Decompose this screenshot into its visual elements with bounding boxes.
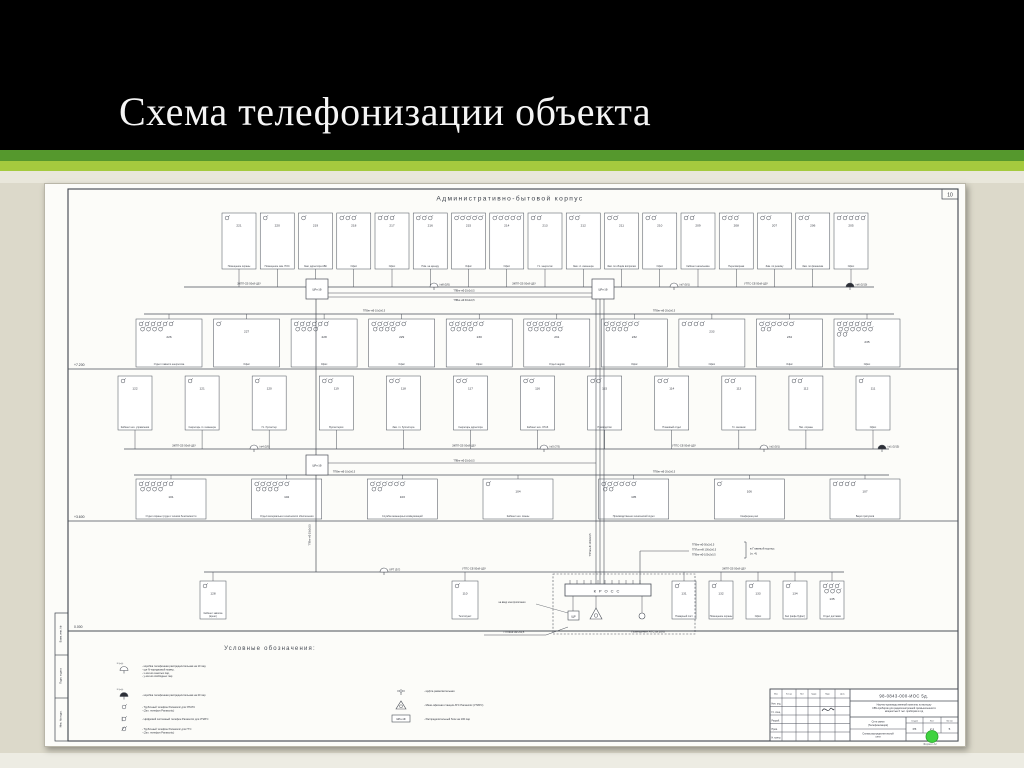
equipment-box: 231Отдел кадров	[524, 319, 590, 367]
equipment-box: 221Помещение охраны	[222, 213, 256, 269]
svg-text:ТПВнг-нФ 20х2х0,5: ТПВнг-нФ 20х2х0,5	[653, 471, 676, 474]
svg-text:208: 208	[734, 224, 739, 228]
svg-text:135: 135	[829, 597, 834, 601]
svg-text:134: 134	[792, 592, 797, 596]
equipment-box: 206Зам. по финансам	[796, 213, 830, 269]
svg-text:98-0843-000-ИОС 5д.: 98-0843-000-ИОС 5д.	[879, 694, 928, 699]
svg-text:Офис: Офис	[504, 265, 511, 268]
svg-text:215: 215	[466, 224, 471, 228]
svg-text:Зам. по режиму: Зам. по режиму	[766, 265, 785, 268]
svg-text:Офис: Офис	[631, 363, 638, 366]
svg-text:114: 114	[669, 387, 674, 391]
svg-text:ПТПЖнг-нФ 2х0,5: ПТПЖнг-нФ 2х0,5	[504, 631, 525, 634]
svg-text:Лист: Лист	[800, 694, 804, 696]
svg-text:(п. 4): (п. 4)	[750, 552, 757, 556]
svg-text:Помещение зам. НОС: Помещение зам. НОС	[265, 265, 290, 268]
svg-text:118: 118	[401, 387, 406, 391]
equipment-box: 113Гл. механик	[722, 376, 756, 430]
svg-text:132: 132	[718, 592, 723, 596]
svg-text:№1 (5/15): №1 (5/15)	[888, 445, 900, 449]
svg-text:- Трубочный телефон Panasonic: - Трубочный телефон Panasonic для ГТС	[142, 727, 192, 731]
equipment-box: 115Руководство	[588, 376, 622, 430]
svg-text:Офис: Офис	[476, 363, 483, 366]
equipment-box: 111Офис	[856, 376, 890, 430]
equipment-box: 117Секретарь директора	[453, 376, 487, 430]
svg-text:Пожарный пост: Пожарный пост	[675, 615, 693, 618]
equipment-box: 216Пом. на аренду	[413, 213, 447, 269]
equipment-box: 107Бюро пропусков	[830, 479, 900, 519]
svg-text:Гл. механик: Гл. механик	[732, 426, 746, 429]
svg-text:Секретарь гл. инженера: Секретарь гл. инженера	[188, 426, 216, 429]
svg-text:- Цифровой системный телефон P: - Цифровой системный телефон Panasonic д…	[142, 717, 209, 721]
svg-text:Зам. по финансам: Зам. по финансам	[802, 265, 823, 268]
svg-text:115: 115	[602, 387, 607, 391]
equipment-box: 134Зал (кафе-буфет)	[783, 581, 807, 619]
svg-text:Бюро пропусков: Бюро пропусков	[856, 515, 875, 518]
svg-text:Зам. директора АБК: Зам. директора АБК	[304, 265, 328, 268]
equipment-box: 208Переговорная	[719, 213, 753, 269]
svg-text:Условные обозначения:: Условные обозначения:	[224, 646, 316, 652]
equipment-box: 207Зам. по режиму	[758, 213, 792, 269]
svg-text:210: 210	[657, 224, 662, 228]
svg-text:219: 219	[313, 224, 318, 228]
svg-text:207: 207	[772, 224, 777, 228]
svg-text:133: 133	[755, 592, 760, 596]
accent-stripe-dark	[0, 150, 1024, 161]
svg-text:- где N-порядковый номер,: - где N-порядковый номер,	[142, 667, 175, 671]
equipment-box: 110Теплопункт	[452, 581, 478, 619]
svg-text:ШРн-1Ф: ШРн-1Ф	[312, 465, 321, 468]
svg-text:235: 235	[864, 340, 869, 344]
svg-text:УТПС-СЕ-50х8-ЦЗУ: УТПС-СЕ-50х8-ЦЗУ	[462, 566, 486, 570]
svg-text:232: 232	[632, 335, 637, 339]
svg-text:Гл. энергетик: Гл. энергетик	[538, 265, 554, 268]
svg-text:ТПВнг-нФ 20х2х0,5: ТПВнг-нФ 20х2х0,5	[453, 290, 475, 293]
svg-text:ЗКПП-СЕ-50х8-ЦЗУ: ЗКПП-СЕ-50х8-ЦЗУ	[237, 281, 261, 285]
svg-text:233: 233	[709, 330, 714, 334]
equipment-box: 131Пожарный пост	[672, 581, 696, 619]
equipment-box: 118Зам. гл. бухгалтера	[386, 376, 420, 430]
svg-text:Переговорная: Переговорная	[728, 265, 745, 268]
equipment-box: 226Отдел главного энергетика	[136, 319, 202, 367]
equipment-box: 214Офис	[490, 213, 524, 269]
svg-text:101: 101	[168, 495, 173, 499]
svg-text:№8 (5/5): №8 (5/5)	[440, 283, 450, 287]
equipment-box: 122Кабинет нач. управления	[118, 376, 152, 430]
svg-text:Зам. гл. инженера: Зам. гл. инженера	[573, 265, 594, 268]
svg-text:120: 120	[267, 387, 272, 391]
svg-text:Помещение охраны: Помещение охраны	[710, 615, 733, 618]
svg-text:Помещение охраны: Помещение охраны	[228, 265, 251, 268]
svg-text:- (2кл. телефон Panasonic): - (2кл. телефон Panasonic)	[142, 708, 174, 712]
svg-text:Подп.: Подп.	[825, 694, 830, 696]
svg-text:Офис: Офис	[755, 615, 762, 618]
svg-text:Офис: Офис	[389, 265, 396, 268]
svg-text:- Трубочный телефон Panasonic: - Трубочный телефон Panasonic для УПАТС	[142, 705, 195, 709]
svg-text:Лист: Лист	[930, 720, 934, 722]
svg-text:Кабинет нач. управления: Кабинет нач. управления	[121, 426, 150, 429]
svg-text:- (2кл. телефон Panasonic): - (2кл. телефон Panasonic)	[142, 730, 174, 734]
slide-title: Схема телефонизации объекта	[119, 88, 651, 135]
svg-text:229: 229	[399, 335, 404, 339]
svg-text:сети: сети	[875, 736, 881, 739]
svg-text:Офис: Офис	[465, 265, 472, 268]
svg-text:в Главный корпус: в Главный корпус	[750, 547, 775, 551]
svg-text:ЗКПП-СЕ-50х8-ЦЗУ: ЗКПП-СЕ-50х8-ЦЗУ	[512, 281, 536, 285]
svg-text:ТПВнг-нФ 50х2х0,5: ТПВнг-нФ 50х2х0,5	[692, 544, 715, 547]
svg-text:КРОСС: КРОСС	[594, 589, 623, 594]
svg-text:ТПВнг-нФ 20х2х0,5: ТПВнг-нФ 20х2х0,5	[653, 310, 676, 313]
equipment-box: 234Офис	[756, 319, 822, 367]
svg-text:234: 234	[787, 335, 792, 339]
svg-text:- коробка телефонная распредел: - коробка телефонная распределительная н…	[142, 693, 206, 697]
svg-text:УТПС-СЕ-50х8-ЦЗУ: УТПС-СЕ-50х8-ЦЗУ	[672, 443, 696, 447]
svg-text:131: 131	[681, 592, 686, 596]
svg-text:Взам. инв. №: Взам. инв. №	[59, 626, 63, 643]
equipment-box: 101Отдел охраны труда и техники безопасн…	[136, 479, 206, 519]
equipment-box: 232Офис	[601, 319, 667, 367]
svg-text:№7 (9/1): №7 (9/1)	[680, 283, 690, 287]
svg-text:№6 (5/10): №6 (5/10)	[856, 283, 868, 287]
svg-text:Офис: Офис	[398, 363, 405, 366]
svg-text:Кабинет нач. смены: Кабинет нач. смены	[507, 515, 530, 518]
svg-text:227: 227	[244, 330, 249, 334]
svg-text:Теплопункт: Теплопункт	[459, 615, 473, 618]
svg-text:Административно-бытовой корпус: Административно-бытовой корпус	[436, 195, 583, 203]
svg-text:212: 212	[581, 224, 586, 228]
floor2-top-row: 221Помещение охраны220Помещение зам. НОС…	[222, 213, 868, 269]
equipment-box: 220Помещение зам. НОС	[260, 213, 294, 269]
svg-text:Гл. бухгалтер: Гл. бухгалтер	[262, 426, 278, 429]
svg-text:КРТ (3/7): КРТ (3/7)	[390, 568, 401, 572]
svg-text:Служба инженерных коммуникаций: Служба инженерных коммуникаций	[382, 515, 423, 518]
svg-text:N (х/у): N (х/у)	[117, 663, 124, 665]
svg-text:+3.600: +3.600	[74, 515, 85, 519]
svg-text:ШРн-1Ф: ШРн-1Ф	[312, 289, 321, 292]
svg-text:106: 106	[747, 490, 752, 494]
accent-stripe-light	[0, 161, 1024, 171]
svg-text:Нач. отд.: Нач. отд.	[772, 703, 782, 705]
svg-text:Отдел материально-технического: Отдел материально-технического обеспечен…	[260, 515, 314, 518]
equipment-box: 209Кабинет начальника	[681, 213, 715, 269]
svg-text:- у-кол-во свободных пар: - у-кол-во свободных пар	[142, 674, 173, 678]
svg-text:Офис: Офис	[786, 363, 793, 366]
svg-text:ЗКПП-СЕ-50х8-ЦЗУ: ЗКПП-СЕ-50х8-ЦЗУ	[172, 443, 196, 447]
svg-text:Секретарь директора: Секретарь директора	[458, 426, 483, 429]
svg-text:ТПВнг-нФ 10х2х0,5: ТПВнг-нФ 10х2х0,5	[363, 310, 386, 313]
equipment-box: 217Офис	[375, 213, 409, 269]
svg-text:121: 121	[200, 387, 205, 391]
svg-text:105: 105	[631, 495, 636, 499]
equipment-box: 219Зам. директора АБК	[299, 213, 333, 269]
svg-text:- Распределительный блок на 10: - Распределительный блок на 100 пар	[424, 717, 471, 721]
equipment-box: 135Отдел доставки	[820, 581, 844, 619]
svg-text:Пом. на аренду: Пом. на аренду	[421, 265, 439, 268]
svg-text:ЩР: ЩР	[571, 614, 576, 618]
equipment-box: 235Офис	[834, 319, 900, 367]
svg-text:211: 211	[619, 224, 624, 228]
drawing-sheet: 10Административно-бытовой корпусВзам. ин…	[44, 183, 966, 747]
equipment-box: 132Помещение охраны	[709, 581, 733, 619]
svg-text:Н. контр.: Н. контр.	[772, 737, 782, 739]
svg-text:0.000: 0.000	[74, 625, 83, 629]
svg-text:107: 107	[862, 490, 867, 494]
equipment-box: 213Гл. энергетик	[528, 213, 562, 269]
svg-text:Конференц-зал: Конференц-зал	[741, 515, 759, 518]
svg-text:Отдел главного энергетика: Отдел главного энергетика	[154, 363, 185, 366]
svg-text:№2 (9/1): №2 (9/1)	[770, 445, 780, 449]
equipment-box: 105Производственно-технический отдел	[599, 479, 669, 519]
equipment-box: 120Гл. бухгалтер	[252, 376, 286, 430]
svg-text:- муфта разветвительная: - муфта разветвительная	[424, 689, 455, 693]
equipment-box: 205Офис	[834, 213, 868, 269]
svg-text:228: 228	[322, 335, 327, 339]
svg-text:116: 116	[535, 387, 540, 391]
title-block: 98-0843-000-ИОС 5д.Научно-производственн…	[770, 689, 958, 746]
background-band-top	[0, 171, 1024, 183]
svg-text:ШРн-1Ф: ШРн-1Ф	[396, 718, 405, 721]
svg-text:- коробка телефонная распредел: - коробка телефонная распределительная н…	[142, 664, 207, 668]
svg-text:ШРн-1Ф: ШРн-1Ф	[598, 289, 607, 292]
svg-text:103: 103	[400, 495, 405, 499]
svg-text:Офис: Офис	[848, 265, 855, 268]
svg-text:№3 (7/3): №3 (7/3)	[550, 445, 560, 449]
svg-text:216: 216	[428, 224, 433, 228]
svg-text:Кабинет начальника: Кабинет начальника	[686, 265, 710, 268]
equipment-box: 102Отдел материально-технического обеспе…	[252, 479, 322, 519]
svg-text:ТПВнг-нФ 30х2х0,5: ТПВнг-нФ 30х2х0,5	[309, 524, 312, 546]
svg-text:№4 (5/5): №4 (5/5)	[260, 445, 270, 449]
svg-text:206: 206	[810, 224, 815, 228]
svg-text:218: 218	[351, 224, 356, 228]
svg-text:220: 220	[275, 224, 280, 228]
svg-text:Отдел доставки: Отдел доставки	[823, 615, 842, 618]
equipment-box: 121Секретарь гл. инженера	[185, 376, 219, 430]
svg-text:221: 221	[236, 224, 241, 228]
telephony-diagram: 10Административно-бытовой корпусВзам. ин…	[44, 183, 966, 747]
equipment-box: 229Офис	[369, 319, 435, 367]
svg-text:Бухгалтерия: Бухгалтерия	[329, 426, 344, 429]
svg-text:ТППэп-нФ 100х2х0,5: ТППэп-нФ 100х2х0,5	[589, 533, 592, 557]
svg-text:Помещение АТС (в.106): Помещение АТС (в.106)	[631, 629, 665, 633]
svg-text:122: 122	[132, 387, 137, 391]
svg-text:Офис: Офис	[864, 363, 871, 366]
equipment-box: 210Офис	[643, 213, 677, 269]
svg-text:213: 213	[542, 224, 547, 228]
svg-text:мощностью 6 тыс. приборов в го: мощностью 6 тыс. приборов в год	[885, 710, 924, 713]
svg-text:Зам. по общим вопросам: Зам. по общим вопросам	[607, 265, 636, 268]
equipment-box: 116Кабинет нач. ОТиЗ	[521, 376, 555, 430]
svg-text:Отдел охраны труда и техники б: Отдел охраны труда и техники безопасност…	[146, 515, 197, 518]
svg-text:ТПВнг-нФ 20х2х0,5: ТПВнг-нФ 20х2х0,5	[453, 459, 475, 462]
svg-text:РЗ: РЗ	[913, 727, 917, 731]
equipment-box: 211Зам. по общим вопросам	[605, 213, 639, 269]
svg-text:128: 128	[210, 592, 215, 596]
equipment-box: 104Кабинет нач. смены	[483, 479, 553, 519]
equipment-box: 212Зам. гл. инженера	[566, 213, 600, 269]
svg-text:231: 231	[554, 335, 559, 339]
svg-text:119: 119	[334, 387, 339, 391]
svg-text:Офис: Офис	[351, 265, 358, 268]
equipment-box: 227Офис	[214, 319, 280, 367]
svg-text:(врем.): (врем.)	[209, 615, 217, 618]
equipment-box: 106Конференц-зал	[714, 479, 784, 519]
svg-text:Подп. и дата: Подп. и дата	[59, 668, 63, 684]
svg-text:на ввод электропитания: на ввод электропитания	[499, 601, 527, 604]
svg-text:Инв. № подл.: Инв. № подл.	[59, 710, 63, 727]
svg-text:ЗКПП-СЕ-50х8-ЦЗУ: ЗКПП-СЕ-50х8-ЦЗУ	[452, 443, 476, 447]
equipment-box: 228Офис	[291, 319, 357, 367]
svg-text:№док.: №док.	[811, 693, 817, 696]
svg-text:217: 217	[389, 224, 394, 228]
svg-text:112: 112	[803, 387, 808, 391]
equipment-box: 119Бухгалтерия	[319, 376, 353, 430]
svg-text:230: 230	[477, 335, 482, 339]
equipment-box: 230Офис	[446, 319, 512, 367]
svg-text:N (х/у): N (х/у)	[117, 689, 124, 691]
equipment-box: 218Офис	[337, 213, 371, 269]
equipment-box: 128Кабинет завхоза(врем.)	[200, 581, 226, 619]
svg-text:214: 214	[504, 224, 509, 228]
svg-text:226: 226	[166, 335, 171, 339]
svg-text:Изм.: Изм.	[774, 694, 779, 696]
svg-text:102: 102	[284, 495, 289, 499]
svg-text:+7.200: +7.200	[74, 363, 85, 367]
svg-text:205: 205	[848, 224, 853, 228]
svg-text:Разраб.: Разраб.	[772, 720, 781, 722]
svg-text:117: 117	[468, 387, 473, 391]
svg-text:Офис: Офис	[243, 363, 250, 366]
svg-text:Кол.уч: Кол.уч	[786, 694, 792, 696]
svg-text:Гл. спец.: Гл. спец.	[772, 712, 782, 714]
svg-text:Офис: Офис	[870, 426, 877, 429]
svg-text:ТПВнг-нФ 10х2х0,5: ТПВнг-нФ 10х2х0,5	[333, 471, 356, 474]
svg-text:Пров.: Пров.	[772, 729, 778, 731]
svg-text:ТППэп-нФ 100х2х0,5: ТППэп-нФ 100х2х0,5	[692, 549, 717, 552]
svg-text:ТПВнг-нФ 100х2х0,5: ТПВнг-нФ 100х2х0,5	[692, 554, 716, 557]
svg-text:ТПВнг-нФ 30х2х0,5: ТПВнг-нФ 30х2х0,5	[453, 299, 475, 302]
background-band-bottom	[0, 753, 1024, 768]
equipment-box: 233Офис	[679, 319, 745, 367]
equipment-box: 133Офис	[746, 581, 770, 619]
svg-text:110: 110	[463, 592, 468, 596]
equipment-box: 112Нач. охраны	[789, 376, 823, 430]
svg-text:10: 10	[947, 192, 953, 198]
equipment-box: 103Служба инженерных коммуникаций	[367, 479, 437, 519]
svg-text:Офис: Офис	[657, 265, 664, 268]
svg-text:Кабинет нач. ОТиЗ: Кабинет нач. ОТиЗ	[527, 426, 549, 429]
svg-text:104: 104	[515, 490, 520, 494]
equipment-box: 215Офис	[452, 213, 486, 269]
svg-text:Листов: Листов	[946, 720, 953, 722]
svg-text:Нач. охраны: Нач. охраны	[799, 426, 813, 429]
svg-text:Офис: Офис	[709, 363, 716, 366]
svg-text:- Мини-офисная станция АТС Pan: - Мини-офисная станция АТС Panasonic (УП…	[424, 703, 484, 707]
svg-text:Зал (кафе-буфет): Зал (кафе-буфет)	[785, 615, 805, 618]
equipment-box: 114Плановый отдел	[655, 376, 689, 430]
svg-text:Плановый отдел: Плановый отдел	[662, 426, 681, 429]
slide-header: Схема телефонизации объекта	[0, 0, 1024, 150]
svg-text:Стадия: Стадия	[911, 720, 918, 722]
svg-text:Зам. гл. бухгалтера: Зам. гл. бухгалтера	[392, 426, 415, 429]
svg-text:Формат А2: Формат А2	[923, 742, 937, 746]
svg-text:(Телефонизация): (Телефонизация)	[868, 724, 888, 727]
svg-text:113: 113	[736, 387, 741, 391]
svg-text:111: 111	[871, 387, 876, 391]
svg-text:УТПС-СЕ-50х8-ЦЗУ: УТПС-СЕ-50х8-ЦЗУ	[744, 281, 768, 285]
svg-text:Офис: Офис	[321, 363, 328, 366]
svg-text:Производственно-технический от: Производственно-технический отдел	[613, 515, 655, 518]
svg-text:Отдел кадров: Отдел кадров	[549, 363, 565, 366]
svg-text:209: 209	[695, 224, 700, 228]
svg-text:ЗКПП-СЕ-50х8-ЦЗУ: ЗКПП-СЕ-50х8-ЦЗУ	[722, 566, 746, 570]
